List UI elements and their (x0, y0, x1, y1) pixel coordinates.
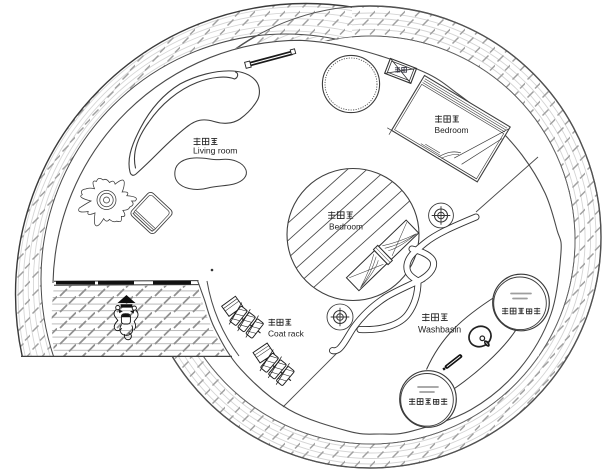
svg-text:Bedroom: Bedroom (329, 222, 363, 232)
svg-text:Bedroom: Bedroom (435, 125, 469, 135)
svg-text:Living room: Living room (193, 146, 237, 156)
svg-text:Coat rack: Coat rack (268, 329, 305, 339)
svg-text:Washbasin: Washbasin (418, 325, 461, 335)
